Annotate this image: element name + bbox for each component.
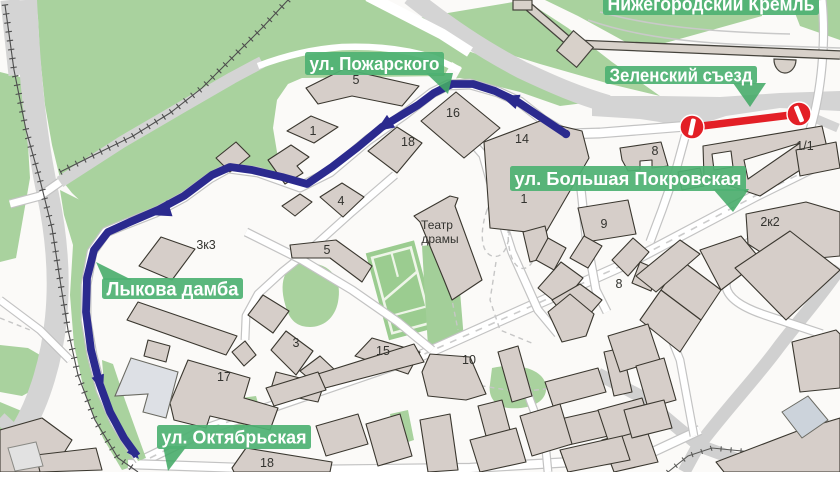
svg-text:18: 18 <box>260 456 274 470</box>
svg-text:драмы: драмы <box>421 232 458 246</box>
svg-text:4: 4 <box>338 194 345 208</box>
svg-text:1: 1 <box>521 192 528 206</box>
svg-text:1/1: 1/1 <box>796 139 813 153</box>
svg-text:10: 10 <box>462 353 476 367</box>
svg-text:8: 8 <box>616 277 623 291</box>
svg-text:ул. Октябрьская: ул. Октябрьская <box>162 428 307 448</box>
svg-text:3к3: 3к3 <box>196 238 215 252</box>
svg-text:Нижегородский Кремль: Нижегородский Кремль <box>608 0 815 15</box>
svg-text:Лыкова дамба: Лыкова дамба <box>107 279 239 300</box>
svg-text:18: 18 <box>401 135 415 149</box>
svg-text:16: 16 <box>446 106 460 120</box>
svg-text:9: 9 <box>601 217 608 231</box>
svg-text:15: 15 <box>376 344 390 358</box>
svg-text:17: 17 <box>217 370 231 384</box>
svg-text:ул. Большая Покровская: ул. Большая Покровская <box>515 169 742 189</box>
svg-text:ул. Пожарского: ул. Пожарского <box>310 54 440 74</box>
svg-text:Зеленский съезд: Зеленский съезд <box>610 66 754 86</box>
svg-text:14: 14 <box>515 132 529 146</box>
svg-text:5: 5 <box>353 73 360 87</box>
svg-text:2к2: 2к2 <box>760 215 779 229</box>
svg-text:Театр: Театр <box>421 218 453 232</box>
svg-text:8: 8 <box>652 144 659 158</box>
svg-text:3: 3 <box>293 336 300 350</box>
svg-text:1: 1 <box>310 124 317 138</box>
svg-text:5: 5 <box>324 243 331 257</box>
